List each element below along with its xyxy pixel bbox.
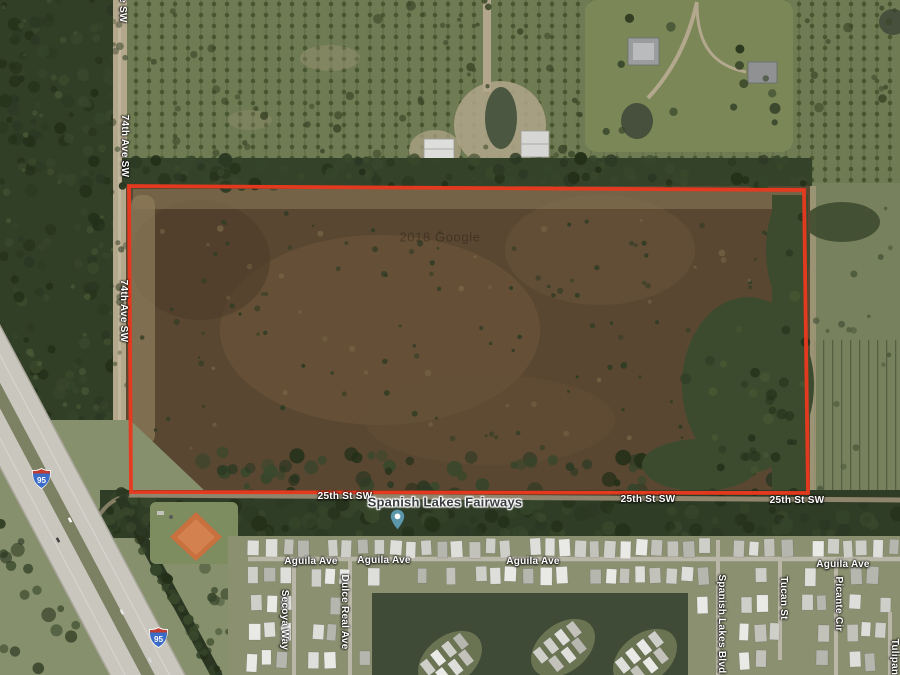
satellite-map[interactable]: e SW 74th Ave SW 74th Ave SW 25th St SW … xyxy=(0,0,900,675)
parcel-field xyxy=(126,183,814,498)
place-label-spanish-lakes-fairways[interactable]: Spanish Lakes Fairways xyxy=(368,496,523,509)
baseball-field xyxy=(150,502,238,564)
residential-spanish-lakes xyxy=(228,536,900,675)
place-pin-icon[interactable] xyxy=(390,508,405,531)
svg-text:95: 95 xyxy=(37,476,47,485)
satellite-terrain xyxy=(0,0,900,675)
field-east xyxy=(800,183,900,505)
i95-shield-icon-2: 95 xyxy=(148,626,169,649)
i95-shield-icon-1: 95 xyxy=(31,467,52,490)
svg-text:95: 95 xyxy=(154,635,164,644)
